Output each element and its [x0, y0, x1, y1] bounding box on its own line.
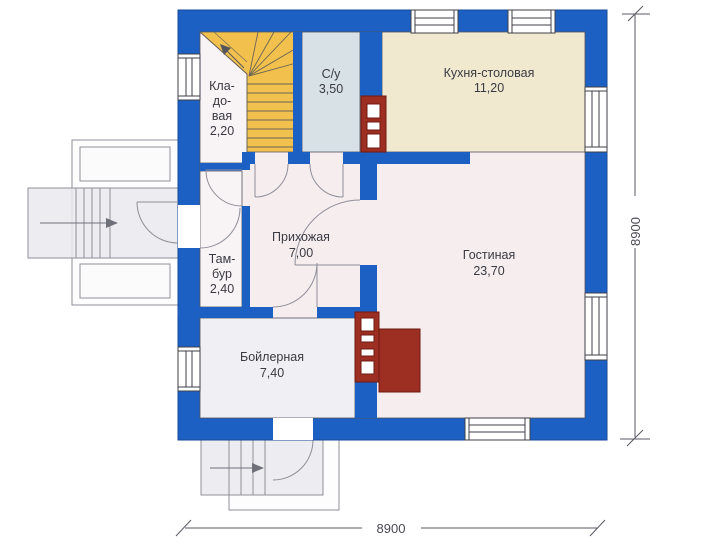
bottom-porch-steps-landing: [201, 438, 323, 495]
west-entrance-opening: [178, 205, 200, 248]
wall-vestibule-hall-upper: [242, 164, 250, 170]
floor-plan-svg: 8900 8900 Кла- до- вая 2,20 С/у 3,50 Кух…: [0, 0, 704, 548]
bottom-porch: [201, 438, 339, 510]
label-living: Гостиная: [463, 248, 515, 262]
window-kitchen-north-1: [411, 10, 458, 33]
left-porch: [28, 140, 178, 305]
wall-hall-living-upper: [360, 164, 377, 200]
window-living-east: [585, 293, 607, 360]
left-porch-rail-bottom: [80, 264, 170, 298]
label-bathroom-area: 3,50: [319, 82, 343, 96]
wall-stair-bathroom: [293, 32, 302, 152]
label-kitchen: Кухня-столовая: [444, 66, 535, 80]
label-boiler-area: 7,40: [260, 366, 284, 380]
label-hallway: Прихожая: [272, 230, 330, 244]
label-bathroom: С/у: [322, 67, 342, 81]
wall-hall-living-lower: [360, 265, 377, 310]
south-entrance-opening: [273, 418, 313, 440]
window-living-south: [465, 418, 530, 440]
window-kitchen-north-2: [508, 10, 555, 33]
label-kitchen-area: 11,20: [474, 81, 504, 95]
dimension-bottom-label: 8900: [377, 521, 406, 536]
window-boiler-west: [178, 347, 200, 391]
label-storage-3: вая: [212, 109, 232, 123]
wall-hall-top-1: [242, 152, 255, 164]
left-porch-rail-top: [80, 147, 170, 181]
label-boiler: Бойлерная: [240, 350, 304, 364]
fireplace: [379, 329, 420, 392]
dimension-right-label: 8900: [628, 217, 643, 246]
window-kitchen-east: [585, 87, 607, 152]
wall-hall-top-2: [288, 152, 310, 164]
label-vestibule-area: 2,40: [210, 282, 234, 296]
wall-kitchen-living-divider: [343, 152, 470, 164]
label-hallway-area: 7,00: [289, 246, 313, 260]
wall-vestibule-hall-lower: [242, 206, 250, 307]
label-vestibule-1: Там-: [209, 252, 236, 266]
label-vestibule-2: бур: [212, 267, 232, 281]
label-storage-2: до-: [213, 94, 231, 108]
wall-bathroom-kitchen: [360, 32, 382, 96]
window-storage-west: [178, 54, 200, 100]
label-living-area: 23,70: [473, 264, 504, 278]
wall-boiler-top-left: [178, 307, 273, 318]
label-storage-area: 2,20: [210, 124, 234, 138]
label-storage-1: Кла-: [209, 79, 235, 93]
floor-plan-image: 8900 8900 Кла- до- вая 2,20 С/у 3,50 Кух…: [0, 0, 704, 548]
